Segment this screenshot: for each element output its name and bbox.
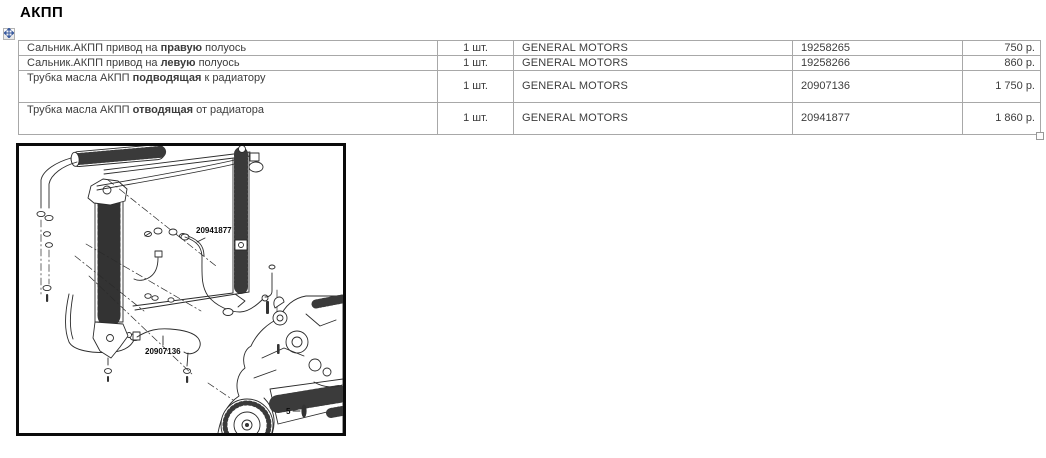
price-cell: 1 750 р. — [963, 71, 1041, 103]
table-row[interactable]: Трубка масла АКПП отводящая от радиатора… — [19, 103, 1041, 135]
qty-cell: 1 шт. — [438, 41, 514, 56]
part-name-cell: Трубка масла АКПП отводящая от радиатора — [19, 103, 438, 135]
part-name-text: полуось — [196, 57, 240, 69]
brand-cell: GENERAL MOTORS — [514, 71, 793, 103]
parts-diagram: 20941877 20907136 — [16, 143, 346, 436]
part-number-cell: 20907136 — [793, 71, 963, 103]
qty-cell: 1 шт. — [438, 71, 514, 103]
table-resize-handle[interactable] — [1036, 132, 1044, 140]
qty-cell: 1 шт. — [438, 56, 514, 71]
grommets — [134, 228, 187, 302]
part-number-cell: 19258266 — [793, 56, 963, 71]
part-name-cell: Сальник.АКПП привод на правую полуось — [19, 41, 438, 56]
qty-cell: 1 шт. — [438, 103, 514, 135]
part-name-bold: правую — [161, 42, 202, 54]
oil-cooler-lines-drawing: 20941877 20907136 — [19, 146, 343, 433]
bolt-callout-label: 5 — [286, 407, 291, 416]
parts-table: Сальник.АКПП привод на правую полуось 1 … — [18, 40, 1041, 135]
part-name-cell: Трубка масла АКПП подводящая к радиатору — [19, 71, 438, 103]
page: АКПП Сальник.АКПП привод на правую по — [0, 0, 1046, 458]
part-number-cell: 19258265 — [793, 41, 963, 56]
part-name-bold: подводящая — [133, 72, 202, 84]
part-name-bold: отводящая — [133, 104, 193, 116]
table-row[interactable]: Сальник.АКПП привод на левую полуось 1 ш… — [19, 56, 1041, 71]
supply-tube: 20907136 — [133, 329, 200, 383]
part-name-text: Трубка масла АКПП — [27, 104, 133, 116]
part-name-bold: левую — [161, 57, 196, 69]
brand-cell: GENERAL MOTORS — [514, 103, 793, 135]
part-name-text: от радиатора — [193, 104, 264, 116]
move-arrows-icon — [4, 25, 14, 43]
part-name-text: полуось — [202, 42, 246, 54]
part-name-text: Сальник.АКПП привод на — [27, 57, 161, 69]
table-row[interactable]: Сальник.АКПП привод на правую полуось 1 … — [19, 41, 1041, 56]
price-cell: 1 860 р. — [963, 103, 1041, 135]
part-name-text: к радиатору — [201, 72, 265, 84]
part-label-return: 20941877 — [196, 226, 232, 235]
part-name-cell: Сальник.АКПП привод на левую полуось — [19, 56, 438, 71]
part-label-supply: 20907136 — [145, 347, 181, 356]
engine-assembly: 5 — [217, 296, 343, 433]
part-name-text: Сальник.АКПП привод на — [27, 42, 161, 54]
page-title: АКПП — [20, 4, 63, 21]
price-cell: 750 р. — [963, 41, 1041, 56]
part-number-cell: 20941877 — [793, 103, 963, 135]
return-tube: 20941877 — [181, 226, 275, 316]
price-cell: 860 р. — [963, 56, 1041, 71]
brand-cell: GENERAL MOTORS — [514, 56, 793, 71]
brand-cell: GENERAL MOTORS — [514, 41, 793, 56]
table-move-handle[interactable] — [3, 28, 15, 40]
table-row[interactable]: Трубка масла АКПП подводящая к радиатору… — [19, 71, 1041, 103]
part-name-text: Трубка масла АКПП — [27, 72, 133, 84]
